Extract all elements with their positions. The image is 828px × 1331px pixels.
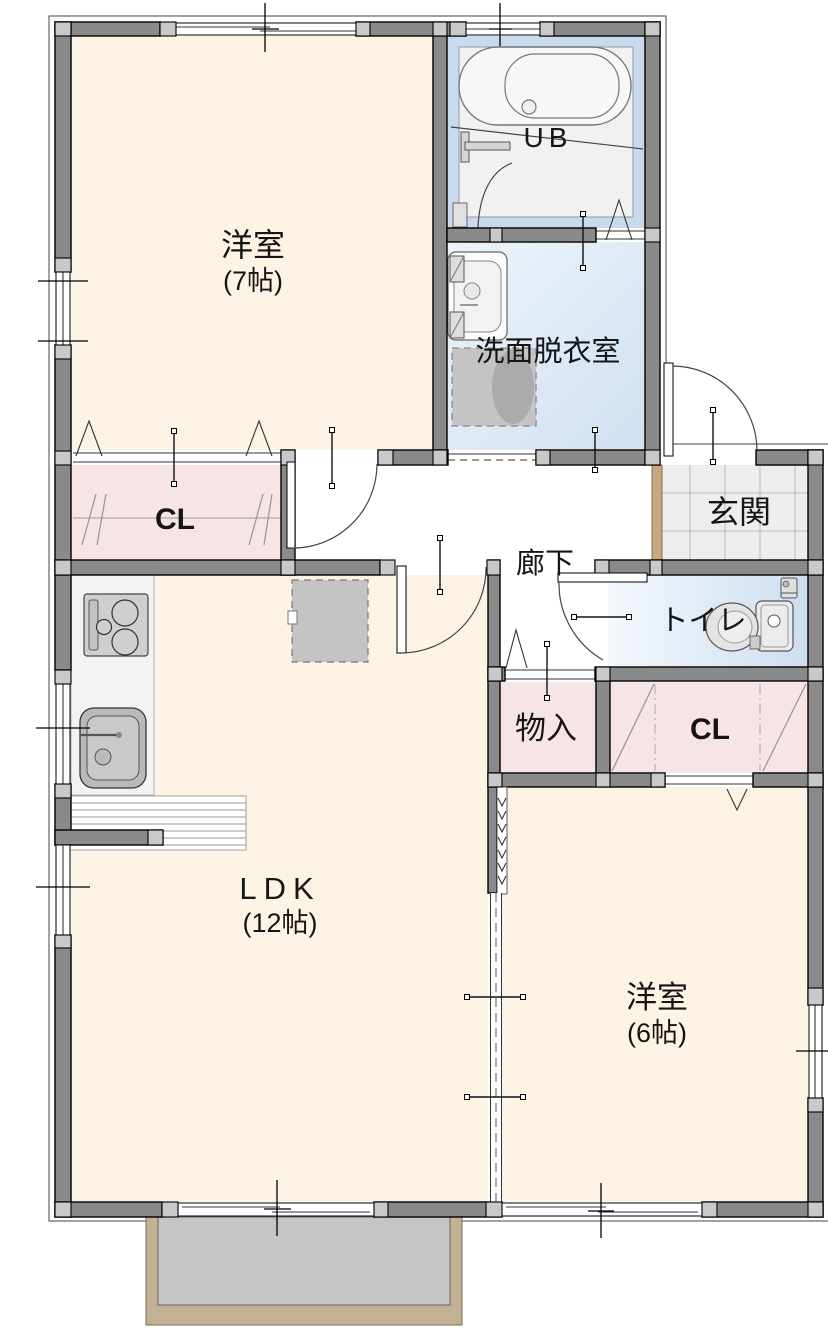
kitchen-counter xyxy=(71,574,154,795)
bath-drain-icon xyxy=(453,203,467,227)
vanity-sink xyxy=(448,252,507,340)
label-entrance: 玄関 xyxy=(707,494,771,530)
label-closet-left: CL xyxy=(155,503,195,536)
label-unit-bath: UB xyxy=(524,122,573,153)
wall-post xyxy=(486,1202,502,1217)
wall-post xyxy=(162,1202,178,1217)
wall-post xyxy=(650,560,662,575)
wall-post xyxy=(808,773,823,787)
balcony-floor xyxy=(158,1217,450,1305)
wall xyxy=(645,22,660,465)
wall-post xyxy=(55,670,71,684)
wall xyxy=(55,935,71,1217)
washroom-sliding-door xyxy=(448,451,536,464)
wall-post xyxy=(55,345,71,359)
wall xyxy=(447,228,596,242)
wall xyxy=(808,450,823,1005)
label-ldk-size: (12帖) xyxy=(242,908,317,938)
wall-post xyxy=(488,773,502,787)
wall xyxy=(433,36,447,450)
wall-post xyxy=(536,450,550,465)
wall-post xyxy=(596,667,610,681)
floor-plan: 洋室 (7帖) UB 洗面脱衣室 玄関 CL 廊下 トイレ 物入 CL LDK … xyxy=(0,0,828,1331)
entrance-step xyxy=(652,465,662,560)
wall-post xyxy=(55,935,71,948)
wall-post xyxy=(488,667,502,681)
label-western-7-size: (7帖) xyxy=(223,266,283,296)
label-western-6: 洋室 xyxy=(626,980,688,1015)
wall-post xyxy=(651,773,665,787)
wall-post xyxy=(808,667,823,681)
wall-post xyxy=(490,228,502,242)
door-swing-mark xyxy=(506,630,527,668)
refrigerator-space xyxy=(288,580,368,662)
toilet-paper-holder-icon xyxy=(781,578,797,598)
wall xyxy=(808,1098,823,1217)
floor-plan-svg: 洋室 (7帖) UB 洗面脱衣室 玄関 CL 廊下 トイレ 物入 CL LDK … xyxy=(0,0,828,1331)
wall xyxy=(488,787,497,893)
wall-post xyxy=(645,22,660,36)
wall xyxy=(374,1202,502,1217)
wall-post xyxy=(808,988,823,1005)
window xyxy=(502,1203,702,1216)
stove-icon xyxy=(84,594,148,656)
label-washroom: 洗面脱衣室 xyxy=(475,335,620,368)
window xyxy=(56,684,70,784)
wall-post xyxy=(281,560,295,575)
wall xyxy=(55,345,71,670)
wall-post xyxy=(55,1202,71,1217)
wall xyxy=(540,22,660,36)
label-hallway: 廊下 xyxy=(516,547,574,580)
wall-post xyxy=(433,22,447,36)
wall-post xyxy=(148,830,163,845)
wall-post xyxy=(55,784,71,798)
wall-post xyxy=(808,1098,823,1112)
wall-post xyxy=(540,22,554,36)
wall xyxy=(536,450,645,465)
wall-post xyxy=(702,1202,717,1217)
label-toilet: トイレ xyxy=(659,605,746,637)
wall-post xyxy=(55,451,71,465)
wall-post xyxy=(487,560,500,575)
window xyxy=(56,845,70,935)
wall-post xyxy=(645,228,660,242)
wall-post xyxy=(380,560,395,575)
wall-post xyxy=(55,560,71,575)
wall-post xyxy=(55,22,71,36)
wall xyxy=(55,22,71,272)
label-storage: 物入 xyxy=(515,711,577,746)
label-western-7: 洋室 xyxy=(221,227,285,263)
wall-post xyxy=(55,258,71,272)
wall-post xyxy=(808,450,823,465)
label-ldk: LDK xyxy=(239,871,320,906)
bathtub xyxy=(459,47,631,125)
wall xyxy=(595,667,823,681)
label-western-6-size: (6帖) xyxy=(627,1018,687,1048)
wall-post xyxy=(645,450,660,465)
storage-door xyxy=(505,630,595,681)
wall-post xyxy=(374,1202,388,1217)
balcony xyxy=(146,1217,462,1325)
wall-post xyxy=(596,773,610,787)
wall-post xyxy=(808,1202,823,1217)
wall xyxy=(702,1202,823,1217)
window xyxy=(56,272,70,345)
wall-post xyxy=(378,450,393,465)
wall-post xyxy=(160,22,176,36)
dimension-mark xyxy=(711,408,716,465)
wall xyxy=(55,560,380,575)
wall-post xyxy=(808,560,823,575)
wall-post xyxy=(433,450,447,465)
wall xyxy=(488,773,665,787)
label-closet-right: CL xyxy=(690,713,730,746)
wall-post xyxy=(450,22,466,36)
wall-post xyxy=(356,22,370,36)
kitchen-sink-icon xyxy=(80,708,146,788)
wall-kitchen-stub xyxy=(55,830,163,845)
wall xyxy=(596,681,610,773)
